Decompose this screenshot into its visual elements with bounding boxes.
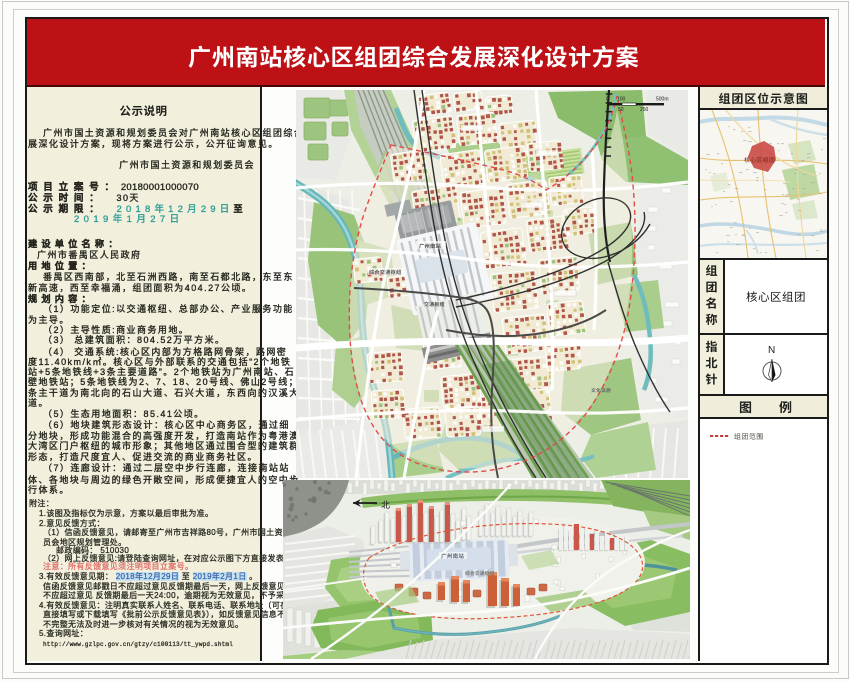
svg-text:0: 0 — [606, 97, 609, 103]
svg-text:100: 100 — [617, 97, 626, 103]
svg-text:50: 50 — [618, 107, 624, 113]
svg-text:500m: 500m — [656, 97, 669, 103]
svg-text:N: N — [768, 345, 775, 356]
svg-text:250: 250 — [640, 107, 649, 113]
